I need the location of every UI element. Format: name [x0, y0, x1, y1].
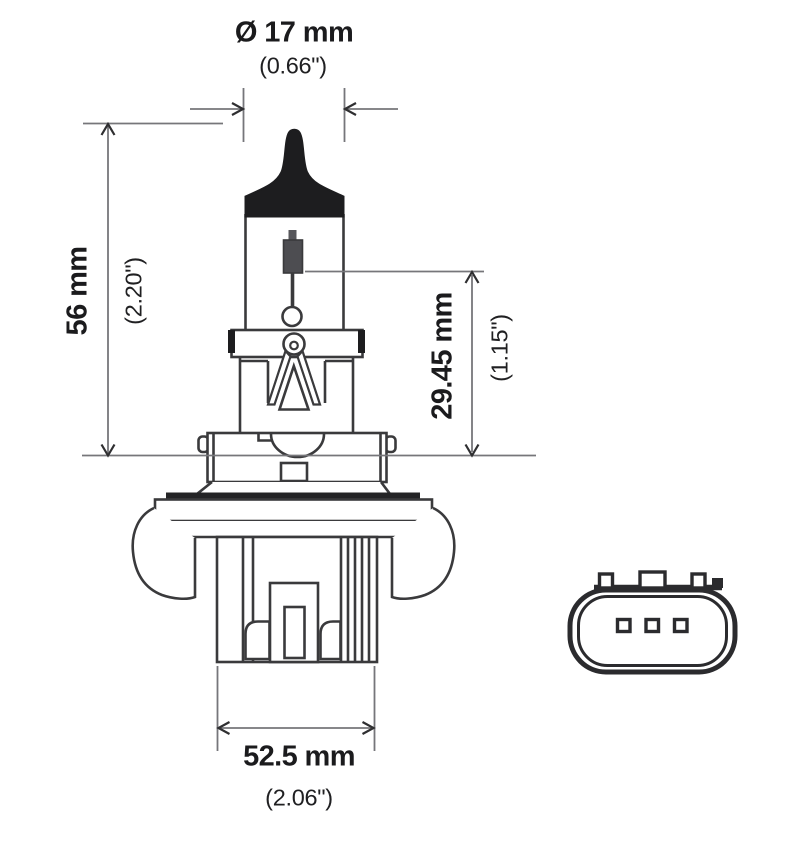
bulb-drawing	[0, 0, 800, 843]
label-diameter-inch: (0.66")	[259, 53, 327, 80]
label-height-inch: (2.20")	[121, 257, 148, 325]
filament	[283, 230, 303, 326]
label-diameter-mm: Ø 17 mm	[235, 17, 353, 50]
label-width-inch: (2.06")	[265, 785, 333, 812]
plastic-body	[217, 537, 377, 662]
label-filament-mm: 29.45 mm	[427, 292, 460, 419]
bulb-side-view	[133, 130, 455, 662]
technical-drawing-page: Ø 17 mm (0.66") 56 mm (2.20") 29.45 mm (…	[0, 0, 800, 843]
label-filament-inch: (1.15")	[487, 314, 514, 382]
label-width-mm: 52.5 mm	[243, 741, 355, 774]
base-flange	[155, 482, 432, 537]
connector-corner-key	[712, 578, 723, 588]
label-height-mm: 56 mm	[62, 247, 95, 336]
pinch-collar	[228, 330, 365, 434]
flange-ring	[199, 433, 396, 482]
connector-face-view	[570, 572, 735, 672]
black-tip	[246, 130, 344, 217]
